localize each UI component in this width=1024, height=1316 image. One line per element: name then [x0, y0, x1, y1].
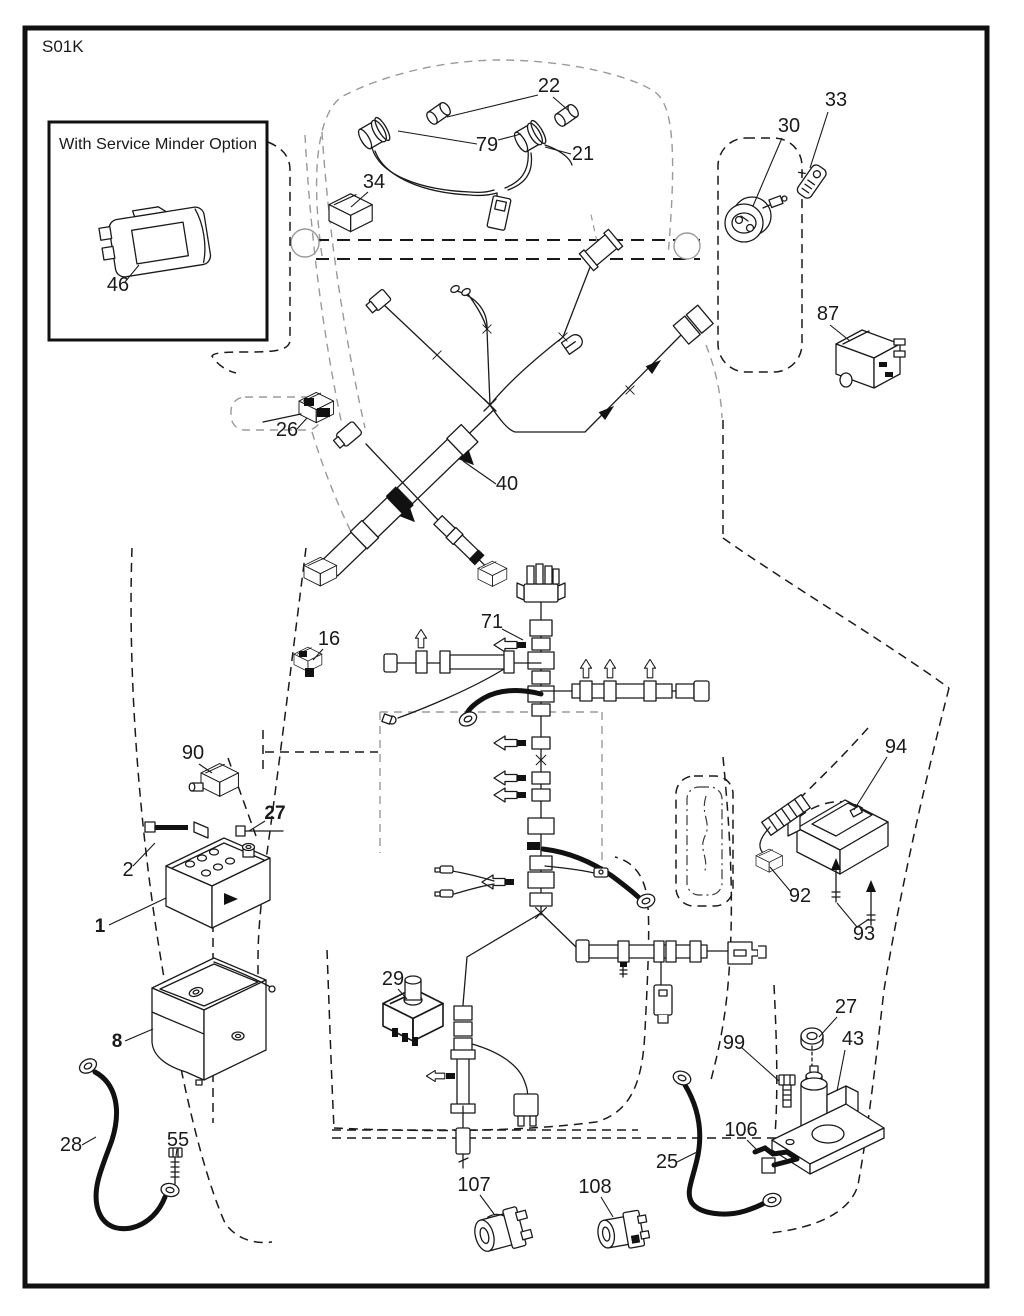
part-2-battery-bolt-icon [145, 822, 208, 838]
lower-harness-branch [426, 1006, 538, 1168]
part-34-switch-icon [329, 194, 372, 232]
part-label-40: 40 [496, 473, 518, 495]
parts-diagram-page: S01K With Service Minder Option [0, 0, 1024, 1316]
part-label-108: 108 [578, 1176, 611, 1198]
part-40-harness-loom-icon [304, 400, 512, 600]
part-label-27: 27 [835, 996, 857, 1018]
inset-title: With Service Minder Option [59, 136, 257, 153]
part-107-solenoid-icon [471, 1204, 534, 1257]
part-108-solenoid-icon [595, 1209, 650, 1253]
part-label-107: 107 [457, 1174, 490, 1196]
part-90-connector-icon [189, 764, 238, 797]
part-1-battery-icon [166, 838, 270, 928]
part-label-28: 28 [60, 1134, 82, 1156]
part-label-21: 21 [572, 143, 594, 165]
part-27-carriage-bolt-icon [236, 826, 283, 836]
right-harness-branch [576, 940, 766, 1023]
part-25-ground-cable [671, 1069, 782, 1214]
part-label-33: 33 [825, 89, 847, 111]
part-71-main-harness [382, 564, 709, 1005]
part-label-106: 106 [724, 1119, 757, 1141]
part-label-90: 90 [182, 742, 204, 764]
part-label-25: 25 [656, 1151, 678, 1173]
part-label-16: 16 [318, 628, 340, 650]
diagram-canvas: S01K With Service Minder Option [0, 0, 1024, 1316]
part-label-22: 22 [538, 75, 560, 97]
part-label-1: 1 [95, 916, 106, 937]
part-22-headlight-bulb-icon [425, 101, 453, 126]
part-33-key-icon [789, 158, 828, 200]
part-label-94: 94 [885, 736, 907, 758]
part-label-27: 27 [264, 803, 285, 824]
part-label-79: 79 [476, 134, 498, 156]
service-minder-inset: With Service Minder Option [49, 122, 267, 340]
part-label-71: 71 [481, 611, 503, 633]
part-16-switch-icon [294, 647, 322, 677]
part-21-headlight-harness [372, 145, 572, 231]
part-label-43: 43 [842, 1028, 864, 1050]
part-label-8: 8 [112, 1031, 123, 1052]
part-55-screw-icon [169, 1148, 182, 1184]
part-label-55: 55 [167, 1129, 189, 1151]
part-8-battery-box-icon [152, 958, 275, 1085]
part-label-2: 2 [122, 859, 133, 881]
part-label-46: 46 [107, 274, 129, 296]
part-label-29: 29 [382, 968, 404, 990]
part-label-26: 26 [276, 419, 298, 441]
part-79-bulb-socket-icon [511, 119, 548, 156]
part-93-screw-icon [831, 858, 876, 925]
part-106-clip-icon [755, 1148, 797, 1173]
part-30-ignition-switch-icon [725, 194, 788, 242]
part-label-30: 30 [778, 115, 800, 137]
part-label-93: 93 [853, 923, 875, 945]
part-label-34: 34 [363, 171, 385, 193]
part-79-bulb-socket-icon [355, 116, 392, 153]
part-label-87: 87 [817, 303, 839, 325]
part-99-bolt-icon [779, 1075, 795, 1107]
part-28-ground-cable [77, 1056, 180, 1229]
part-22-headlight-bulb-icon [553, 103, 581, 128]
page-code: S01K [42, 37, 84, 56]
part-label-99: 99 [723, 1032, 745, 1054]
part-label-92: 92 [789, 885, 811, 907]
